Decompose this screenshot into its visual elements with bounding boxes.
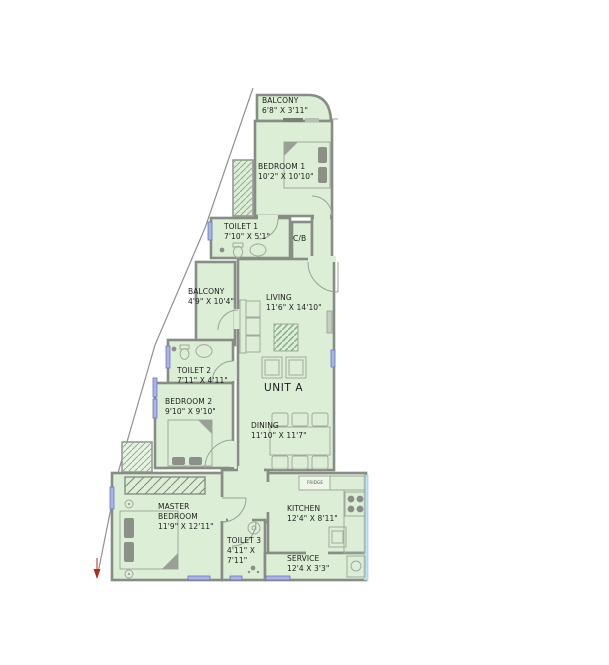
room-label-kitchen: KITCHEN 12'4" X 8'11" bbox=[287, 504, 338, 524]
rug-icon bbox=[274, 324, 298, 351]
room-bedroom-2 bbox=[155, 383, 233, 468]
room-label-master-bedroom: MASTER BEDROOM 11'9" X 12'11" bbox=[158, 502, 220, 531]
sliding-door-marks bbox=[283, 118, 319, 122]
window-icon bbox=[153, 399, 157, 418]
room-label-toilet-1: TOILET 1 7'10" X 5'1" bbox=[224, 222, 270, 242]
room-label-bedroom-2: BEDROOM 2 9'10" X 9'10" bbox=[165, 397, 216, 417]
room-label-dining: DINING 11'10" X 11'7" bbox=[251, 421, 307, 441]
room-foyer-passage bbox=[312, 218, 332, 259]
window-icon bbox=[153, 378, 157, 397]
room-label-living: LIVING 11'6" X 14'10" bbox=[266, 293, 322, 313]
room-label-bedroom-1: BEDROOM 1 10'2" X 10'10" bbox=[258, 162, 314, 182]
window-icon bbox=[266, 576, 290, 580]
room-hallway bbox=[222, 470, 268, 522]
room-label-service: SERVICE 12'4 X 3'3" bbox=[287, 554, 329, 574]
fridge-label: FRIDGE bbox=[300, 480, 330, 485]
window-icon bbox=[188, 576, 210, 580]
room-label-toilet-2: TOILET 2 7'11" X 4'11" bbox=[177, 366, 228, 386]
room-label-balcony-side: BALCONY 4'9" X 10'4" bbox=[188, 287, 234, 307]
unit-label: UNIT A bbox=[264, 382, 303, 394]
floor-plan: BALCONY 6'8" X 3'11" BEDROOM 1 10'2" X 1… bbox=[0, 0, 609, 665]
window-icon bbox=[208, 222, 212, 240]
window-icon bbox=[166, 346, 170, 368]
window-icon bbox=[331, 350, 335, 367]
window-icon bbox=[230, 576, 242, 580]
tv-unit-icon bbox=[327, 311, 332, 333]
room-label-toilet-3: TOILET 3 4'11" X 7'11" bbox=[227, 536, 263, 565]
room-label-cb-closet: C/B bbox=[293, 234, 306, 244]
window-icon bbox=[110, 487, 114, 509]
room-label-balcony-top: BALCONY 6'8" X 3'11" bbox=[262, 96, 308, 116]
